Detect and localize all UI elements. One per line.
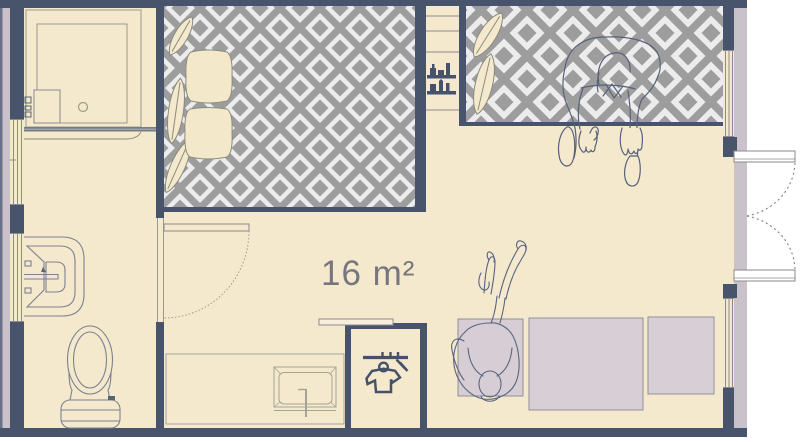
svg-text:16 m²: 16 m²: [321, 254, 415, 293]
